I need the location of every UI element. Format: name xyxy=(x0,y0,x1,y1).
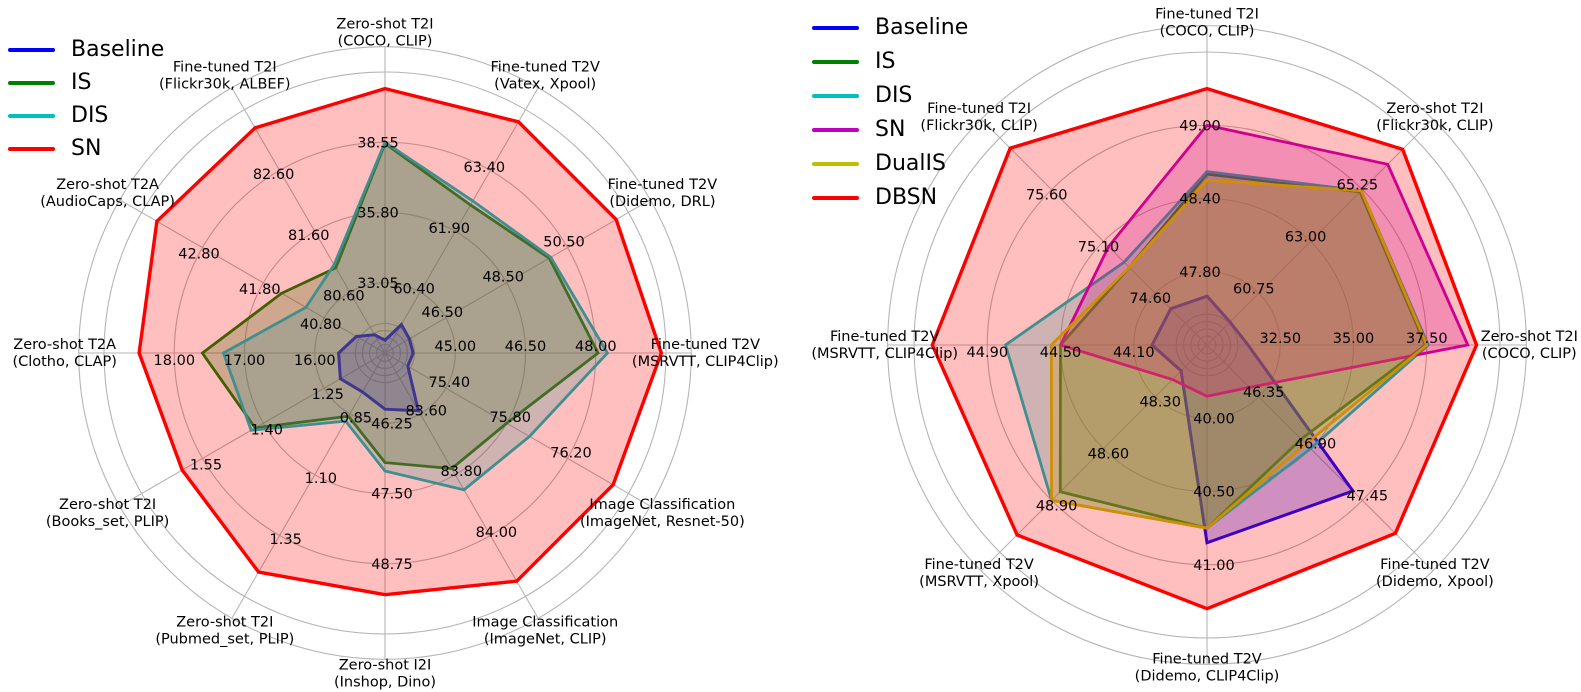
legend-item-sn: SN xyxy=(8,137,164,161)
legend-right: BaselineISDISSNDualISDBSN xyxy=(812,16,968,210)
tick-label: 38.55 xyxy=(357,135,399,151)
axis-title: Fine-tuned T2V(MSRVTT, CLIP4Clip) xyxy=(811,329,958,362)
legend-item-is: IS xyxy=(8,71,164,95)
legend-item-dbsn: DBSN xyxy=(812,186,968,210)
tick-label: 81.60 xyxy=(288,228,330,244)
tick-label: 46.50 xyxy=(505,339,547,355)
tick-label: 18.00 xyxy=(154,353,196,369)
tick-label: 44.90 xyxy=(967,345,1009,361)
radar-chart-left: 33.0535.8038.55Zero-shot T2I(COCO, CLIP)… xyxy=(0,0,770,692)
tick-label: 82.60 xyxy=(253,167,295,183)
tick-label: 35.00 xyxy=(1333,331,1375,347)
axis-title: Zero-shot I2I(Inshop, Dino) xyxy=(334,657,436,690)
legend-label: SN xyxy=(71,138,101,160)
tick-label: 41.80 xyxy=(239,282,281,298)
legend-line-swatch xyxy=(812,162,859,166)
tick-label: 17.00 xyxy=(224,353,266,369)
legend-label: Baseline xyxy=(71,39,164,61)
tick-label: 47.80 xyxy=(1179,265,1221,281)
tick-label: 75.80 xyxy=(489,410,531,426)
tick-label: 63.00 xyxy=(1285,230,1327,246)
tick-label: 35.80 xyxy=(357,206,399,222)
tick-label: 75.60 xyxy=(1026,188,1068,204)
tick-label: 44.50 xyxy=(1040,345,1082,361)
tick-label: 45.00 xyxy=(435,339,477,355)
tick-label: 1.10 xyxy=(305,471,337,487)
legend-line-swatch xyxy=(8,48,55,52)
tick-label: 74.60 xyxy=(1130,291,1172,307)
legend-label: SN xyxy=(875,119,905,141)
tick-label: 50.50 xyxy=(543,235,585,251)
tick-label: 1.25 xyxy=(312,387,344,403)
tick-label: 48.30 xyxy=(1139,395,1181,411)
tick-label: 48.60 xyxy=(1088,447,1130,463)
legend-item-is: IS xyxy=(812,50,968,74)
legend-item-baseline: Baseline xyxy=(812,16,968,40)
legend-line-swatch xyxy=(812,26,859,30)
tick-label: 48.00 xyxy=(575,339,617,355)
legend-line-swatch xyxy=(812,60,859,64)
legend-item-sn: SN xyxy=(812,118,968,142)
legend-line-swatch xyxy=(812,128,859,132)
axis-title: Image Classification(ImageNet, CLIP) xyxy=(472,614,618,647)
tick-label: 65.25 xyxy=(1337,178,1379,194)
tick-label: 84.00 xyxy=(476,525,518,541)
axis-title: Zero-shot T2I(Pubmed_set, PLIP) xyxy=(155,614,294,647)
legend-label: IS xyxy=(875,51,895,73)
axis-title: Fine-tuned T2I(COCO, CLIP) xyxy=(1155,7,1259,40)
tick-label: 83.80 xyxy=(441,464,483,480)
tick-label: 40.80 xyxy=(300,317,342,333)
axis-title: Fine-tuned T2V(MSRVTT, Xpool) xyxy=(919,557,1039,590)
axis-title: Image Classification(ImageNet, Resnet-50… xyxy=(580,497,745,530)
tick-label: 0.85 xyxy=(340,410,372,426)
legend-item-dualis: DualIS xyxy=(812,152,968,176)
axis-title: Zero-shot T2A(Clotho, CLAP) xyxy=(12,337,117,370)
legend-label: DIS xyxy=(71,105,108,127)
legend-line-swatch xyxy=(8,81,55,85)
axis-title: Fine-tuned T2V(Vatex, Xpool) xyxy=(490,60,600,93)
axis-title: Zero-shot T2I(COCO, CLIP) xyxy=(1481,329,1578,362)
tick-label: 75.40 xyxy=(429,375,471,391)
tick-label: 48.75 xyxy=(371,557,413,573)
legend-left: BaselineISDISSN xyxy=(8,38,164,161)
legend-item-baseline: Baseline xyxy=(8,38,164,62)
tick-label: 32.50 xyxy=(1260,331,1302,347)
axis-title: Zero-shot T2I(COCO, CLIP) xyxy=(336,17,433,50)
tick-label: 60.40 xyxy=(393,282,435,298)
tick-label: 80.60 xyxy=(323,289,365,305)
axis-title: Fine-tuned T2V(Didemo, DRL) xyxy=(608,177,718,210)
axis-title: Fine-tuned T2I(Flickr30k, ALBEF) xyxy=(159,60,291,93)
legend-line-swatch xyxy=(812,196,859,200)
tick-label: 75.10 xyxy=(1078,239,1120,255)
tick-label: 44.10 xyxy=(1113,345,1155,361)
axis-title: Zero-shot T2A(AudioCaps, CLAP) xyxy=(40,177,175,210)
tick-label: 1.35 xyxy=(270,532,302,548)
tick-label: 16.00 xyxy=(294,353,336,369)
tick-label: 46.35 xyxy=(1243,385,1285,401)
tick-label: 48.50 xyxy=(482,270,524,286)
tick-label: 48.90 xyxy=(1036,498,1078,514)
tick-label: 46.25 xyxy=(371,416,413,432)
figure: 33.0535.8038.55Zero-shot T2I(COCO, CLIP)… xyxy=(0,0,1581,692)
legend-label: Baseline xyxy=(875,17,968,39)
legend-label: DualIS xyxy=(875,153,946,175)
tick-label: 46.50 xyxy=(422,305,464,321)
legend-label: DIS xyxy=(875,85,912,107)
tick-label: 40.50 xyxy=(1193,485,1235,501)
legend-label: DBSN xyxy=(875,187,937,209)
legend-label: IS xyxy=(71,72,91,94)
tick-label: 48.40 xyxy=(1179,192,1221,208)
tick-label: 47.45 xyxy=(1347,488,1389,504)
tick-label: 42.80 xyxy=(178,247,220,263)
axis-title: Fine-tuned T2V(Didemo, CLIP4Clip) xyxy=(1135,651,1280,684)
radar-chart-right: 47.8048.4049.00Fine-tuned T2I(COCO, CLIP… xyxy=(770,0,1581,692)
tick-label: 41.00 xyxy=(1193,558,1235,574)
legend-line-swatch xyxy=(8,114,55,118)
axis-title: Zero-shot T2I(Books_set, PLIP) xyxy=(46,497,169,530)
legend-item-dis: DIS xyxy=(8,104,164,128)
legend-line-swatch xyxy=(812,94,859,98)
legend-item-dis: DIS xyxy=(812,84,968,108)
tick-label: 60.75 xyxy=(1233,281,1275,297)
tick-label: 61.90 xyxy=(428,221,470,237)
tick-label: 47.50 xyxy=(371,487,413,503)
axis-title: Fine-tuned T2V(Didemo, Xpool) xyxy=(1376,557,1494,590)
tick-label: 1.55 xyxy=(190,457,222,473)
tick-label: 1.40 xyxy=(251,422,283,438)
legend-line-swatch xyxy=(8,147,55,151)
axis-title: Fine-tuned T2V(MSRVTT, CLIP4Clip) xyxy=(632,337,779,370)
tick-label: 49.00 xyxy=(1179,118,1221,134)
tick-label: 63.40 xyxy=(464,160,506,176)
tick-label: 40.00 xyxy=(1193,411,1235,427)
tick-label: 46.90 xyxy=(1295,437,1337,453)
axis-title: Zero-shot T2I(Flickr30k, CLIP) xyxy=(1376,101,1493,134)
tick-label: 37.50 xyxy=(1406,331,1448,347)
series-polygon-dbsn xyxy=(932,89,1476,609)
tick-label: 76.20 xyxy=(550,445,592,461)
